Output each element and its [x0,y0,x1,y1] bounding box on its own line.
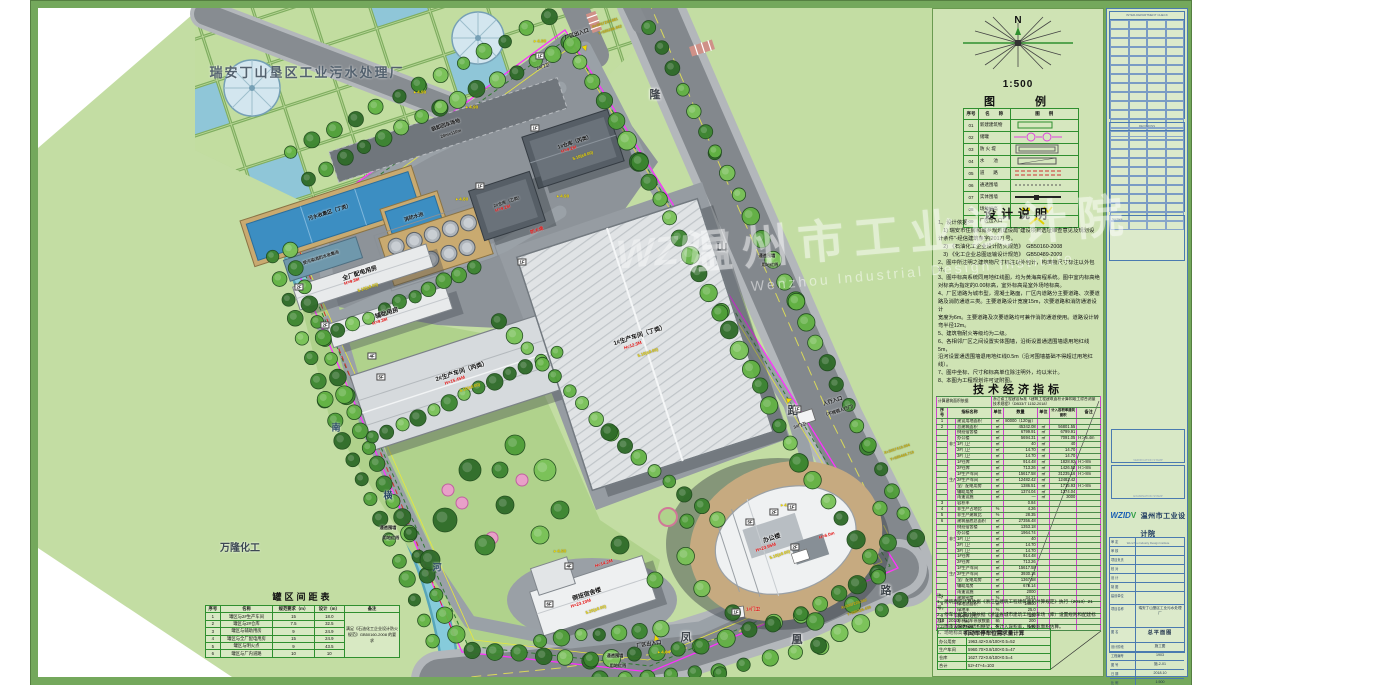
scale-label: 1:500 [933,79,1103,90]
legend-row: 01新建建筑物 [964,119,1079,131]
title-field-row: 审 定 [1110,538,1184,547]
parking-row: 办公用房1963.42×0.6/100×0.5=52 [938,638,1051,646]
page: 罐区间距表 序号名称规范要求（m）设计（m）备注1罐区与2#生产车间1518.0… [0,0,1383,685]
fence-solid-icon [1012,192,1064,202]
compass-north-label: N [933,15,1103,26]
design-note-line: 2、图中所注明之建筑物尺寸标注以外包计，构筑物尺寸标注以外包计。 [938,260,1100,276]
notes-box-header: NOTES [1110,216,1184,223]
dike-icon [1012,144,1064,154]
title-grid-row: 比 例1:500 [1110,679,1184,685]
revisions-table: REVISIONS [1109,122,1185,212]
client-label: 建设单位 [1110,592,1136,604]
title-field-row: 项目负责 [1110,556,1184,565]
tank-icon [1012,132,1064,142]
site-plan-drawing [38,8,932,677]
verification-stamp-label: VERIFICATION STAMP [1133,458,1163,462]
title-grid-row: 设计阶段施工图 [1110,643,1184,652]
tank-spacing-table-grid: 序号名称规范要求（m）设计（m）备注1罐区与2#生产车间1518.0满足《石油化… [205,605,400,658]
design-note-line: 对标高为指定的0.00标高，室外标高是室外场地标高。 [938,283,1100,291]
logo-company-name: 温州市工业设计院 [1141,513,1186,538]
road-icon [1012,168,1064,178]
pool-icon [1012,156,1064,166]
legend-header-row: 序号名 称图 例 [964,109,1079,120]
title-field-row: 制 图 [1110,583,1184,592]
design-note-line: 3) 《化工企业总图运输设计规范》 GB50489-2009 [938,252,1100,260]
sign-off-table: INTER-DEPARTMENT CHECK [1109,11,1185,119]
verification-stamp-box: VERIFICATION STAMP [1111,429,1185,463]
legend-row: 05道 路 [964,167,1079,179]
client-value [1136,592,1184,604]
design-note-line: 2) 《石油化工企业设计防火规范》 GB50160-2008 [938,244,1100,252]
tank-spacing-table: 罐区间距表 序号名称规范要求（m）设计（m）备注1罐区与2#生产车间1518.0… [205,590,400,658]
design-note-line: 7、图中坐标、尺寸和标高单位除注明外，均以米计。 [938,370,1100,378]
parking-table-title: 机动车停车位需求量计算 [937,628,1051,637]
design-notes-text: 1、设计依据: 1) 瑞安市住房和城乡规划建设局“建设项目选址审查意见及规划设计… [938,220,1100,386]
title-field-row: 校 对 [1110,565,1184,574]
logo-mark: WZID [1110,511,1130,520]
design-note-line: 路及消防通道三类。主要道路设计宽度15m，次要道路和消防通道设计 [938,299,1100,315]
indicator-note-line: 2、停车位配置计算依据《浙江省城市建筑工程停车场（库）设置规则和配建标准》（20… [937,612,1101,624]
title-block: INTER-DEPARTMENT CHECK REVISIONS NOTES V… [1106,8,1188,677]
drawing-title-label: 图 名 [1110,628,1136,642]
tank-header-row: 序号名称规范要求（m）设计（m）备注 [206,606,400,613]
design-note-line: 5、建筑物耐火等级均为二级。 [938,331,1100,339]
revisions-header: REVISIONS [1110,123,1184,131]
legend-row: 04水 池 [964,155,1079,167]
project-name: 瑞安丁山垦区工业污水处理厂 [1136,605,1184,627]
title-grid-row: 图 号施-2-01 [1110,661,1184,670]
legend-title: 图 例 [933,93,1103,109]
design-note-line: 宽度为6m。主要道路及次要道路均可兼作消防通道使用。道路设计转 [938,315,1100,323]
sign-off-header: INTER-DEPARTMENT CHECK [1110,12,1184,20]
parking-row: 仓库1627.72×0.6/100×0.5=4 [938,654,1051,662]
design-note-line: 1) 瑞安市住房和城乡规划建设局“建设项目选址审查意见及规划设 [938,228,1100,236]
design-note-line: 4、厂区道路为城市型，混凝土路面，厂区内道路分主要道路、次要道 [938,291,1100,299]
parking-demand-table: 办公用房1963.42×0.6/100×0.5=52生产车间5960.70×0.… [937,637,1051,670]
flower-bed [659,508,677,526]
info-panel: N 1:500 图 例 序号名 称图 例01新建建筑物02储罐03防 火 堤04… [932,8,1104,677]
examination-stamp-box: EXAMINATION STAMP [1111,465,1185,499]
parking-row: 合计52+47+4=103 [938,662,1051,670]
tank-row: 1罐区与2#生产车间1518.0满足《石油化工企业设计防火规范》GB50160-… [206,613,400,620]
indicator-note-line: 1、建筑面积计算依据《浙江省建筑工程建筑面积计算规定》执行（2013）21号。 [937,599,1101,611]
indicators-header-row: 序号指标名称单位数量单位计入容积率建筑面积备注 [937,407,1101,418]
project-label: 项目名称 [1110,605,1136,627]
design-note-line: 6、各相邻厂区之间设置实体围墙，沿街设置通透围墙退用地红线5m， [938,339,1100,355]
title-fields: 审 定审 核项目负责校 对设 计制 图 建设单位 项目名称瑞安丁山垦区工业污水处… [1109,537,1185,653]
tank-table-title: 罐区间距表 [205,590,400,603]
certificate-line: · · · · · · · · · · · · · · · · · · · · [1109,659,1185,662]
legend-row: 03防 火 堤 [964,143,1079,155]
design-note-line: 沿河设置通透围墙退用地红线0.5m（沿河围墙基础不得超过用地红 [938,354,1100,362]
design-note-line: 计条件”-经信建筑条字[2017] 号。 [938,236,1100,244]
basis-row: 计算建筑面积依据浙江省工程建设标准《建筑工程建筑面积计算和竣工综合测量技术规程》… [937,397,1101,408]
logo-mark-v: V [1131,511,1136,520]
tank-table-note: 满足《石油化工企业设计防火规范》GB50160-2008 的要求 [345,613,400,657]
parking-row: 生产车间5960.70×0.8/100×0.5=47 [938,646,1051,654]
title-field-row: 审 核 [1110,547,1184,556]
title-field-row: 设 计 [1110,574,1184,583]
parking-table: 机动车停车位需求量计算 办公用房1963.42×0.6/100×0.5=52生产… [937,628,1051,670]
parking-strike-line [1051,631,1101,669]
building-icon [1012,120,1064,130]
legend-row: 07实体围墙 [964,191,1079,203]
examination-stamp-label: EXAMINATION STAMP [1133,494,1162,498]
notes-box: NOTES [1109,215,1185,261]
legend-row: 06通透围墙 [964,179,1079,191]
design-note-line: 1、设计依据: [938,220,1100,228]
indicators-title: 技术经济指标 [933,381,1103,397]
drawing-title: 总平面图 [1136,628,1184,642]
fence-open-icon [1012,180,1064,190]
title-grid-row: 日 期2018.10 [1110,670,1184,679]
legend-row: 02储罐 [964,131,1079,143]
design-note-line: 弯半径12m。 [938,323,1100,331]
